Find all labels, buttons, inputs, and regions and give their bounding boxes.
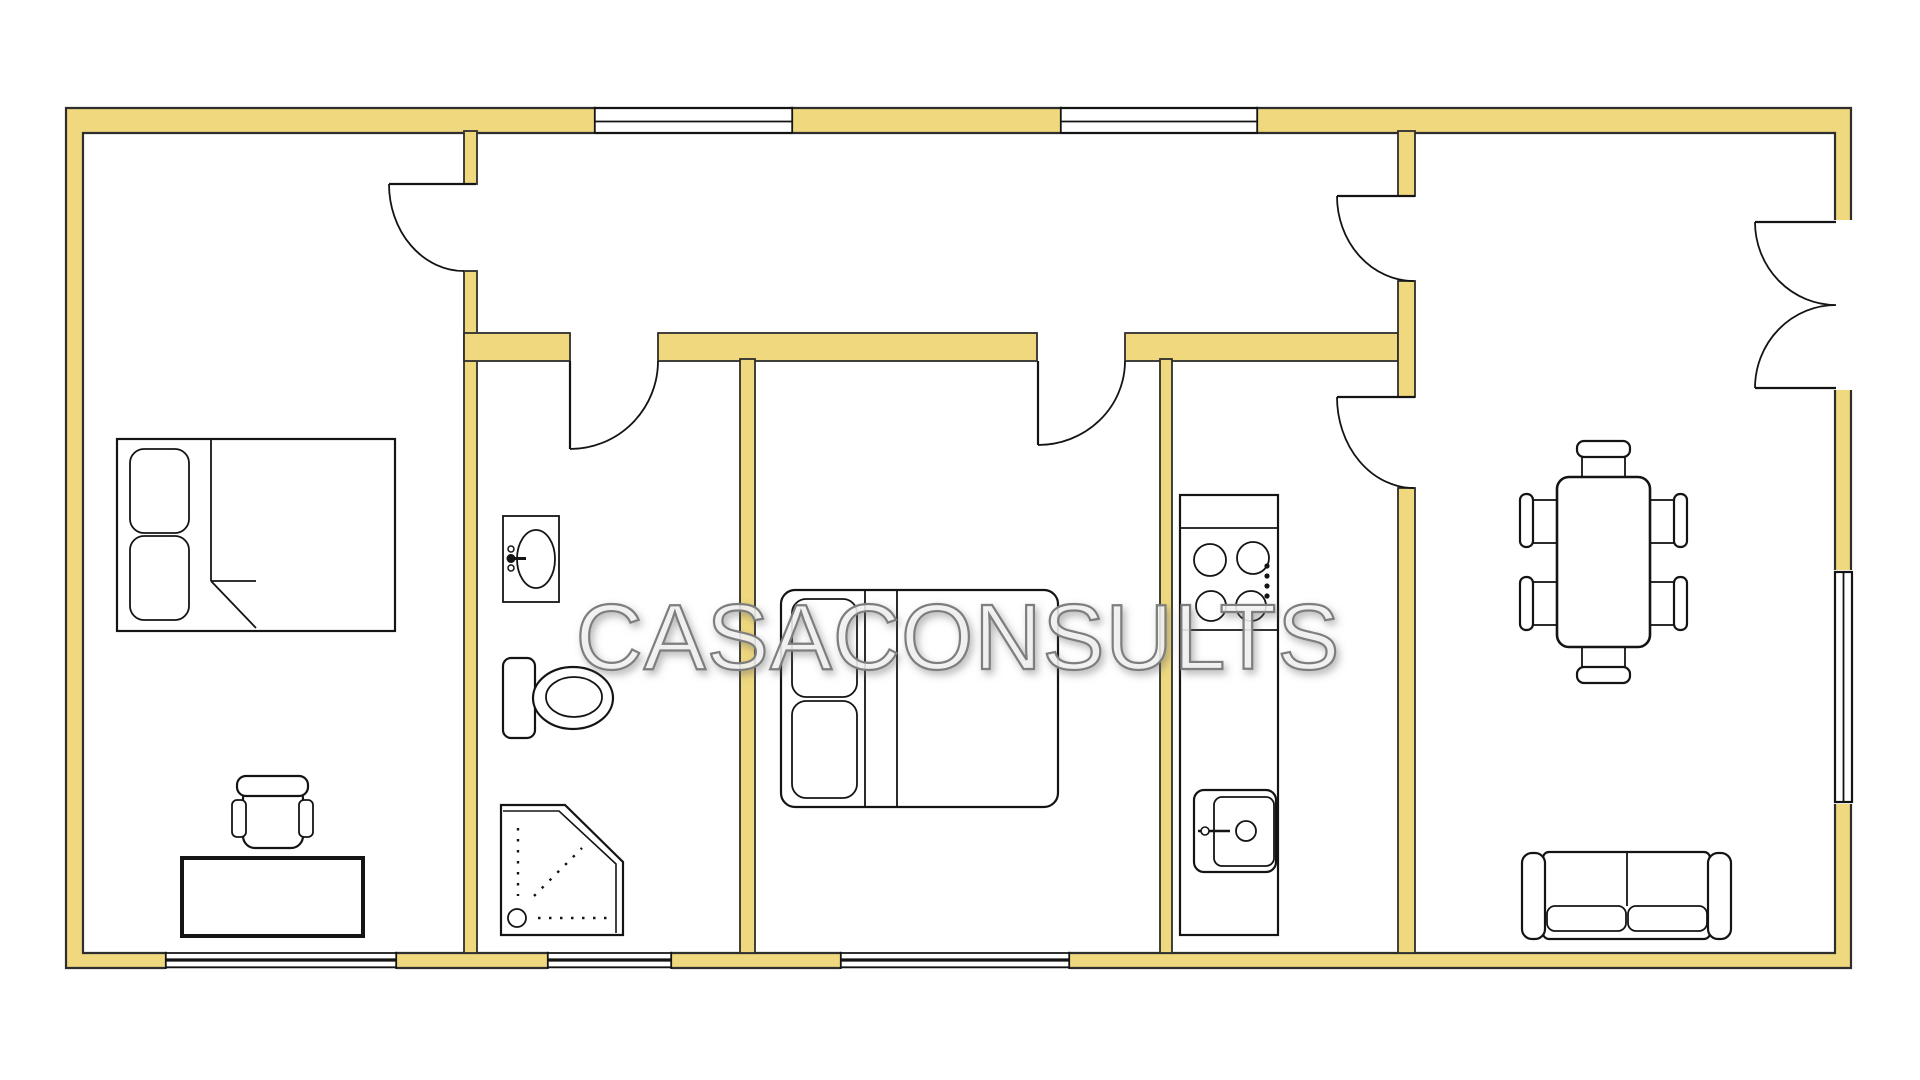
dining-chair-left-2 xyxy=(1520,577,1558,630)
window-top-1 xyxy=(594,106,793,135)
door-hall-living xyxy=(1337,196,1415,281)
hall-wall-segment-3 xyxy=(1125,333,1398,361)
corner-shower xyxy=(501,805,623,935)
floor-plan-page: CASACONSULTS xyxy=(0,0,1920,1080)
double-bed-left xyxy=(117,439,395,631)
dining-chair-right-1 xyxy=(1649,494,1687,547)
dining-chair-left-1 xyxy=(1520,494,1558,547)
window-bottom-bedroom-left xyxy=(165,951,397,970)
bedroom-left-furniture xyxy=(117,439,395,936)
washbasin xyxy=(503,516,559,602)
hall-wall-segment-1 xyxy=(464,333,570,361)
wall-bedroom-left-top xyxy=(464,131,477,184)
wall-living-top xyxy=(1398,131,1415,196)
desk xyxy=(182,858,363,936)
dining-chair-top xyxy=(1577,441,1630,479)
kitchen-fixtures xyxy=(1180,495,1278,935)
dining-table xyxy=(1557,477,1650,647)
living-dining-furniture xyxy=(1520,441,1731,939)
dining-chair-bottom xyxy=(1577,645,1630,683)
window-bottom-bathroom xyxy=(547,951,672,970)
window-right-living xyxy=(1832,570,1854,804)
wall-bedroom-left-main xyxy=(464,271,477,953)
floor-plan: CASACONSULTS xyxy=(0,0,1920,1080)
window-bottom-bedroom-middle xyxy=(840,951,1070,970)
door-bathroom xyxy=(570,361,658,449)
kitchen-sink xyxy=(1194,790,1276,872)
wall-living-bottom xyxy=(1398,488,1415,953)
dining-chair-right-2 xyxy=(1649,577,1687,630)
hall-wall-segment-2 xyxy=(658,333,1037,361)
bathroom-fixtures xyxy=(501,516,623,935)
door-bedroom-middle xyxy=(1038,361,1125,445)
office-chair xyxy=(232,776,313,848)
door-kitchen-living xyxy=(1337,397,1415,488)
wall-living-mid xyxy=(1398,281,1415,397)
doors xyxy=(389,184,1854,488)
door-bedroom-left xyxy=(389,184,476,271)
window-top-2 xyxy=(1060,106,1258,135)
entrance-double-door xyxy=(1755,220,1854,390)
watermark-text: CASACONSULTS xyxy=(576,585,1341,689)
sofa xyxy=(1522,852,1731,939)
